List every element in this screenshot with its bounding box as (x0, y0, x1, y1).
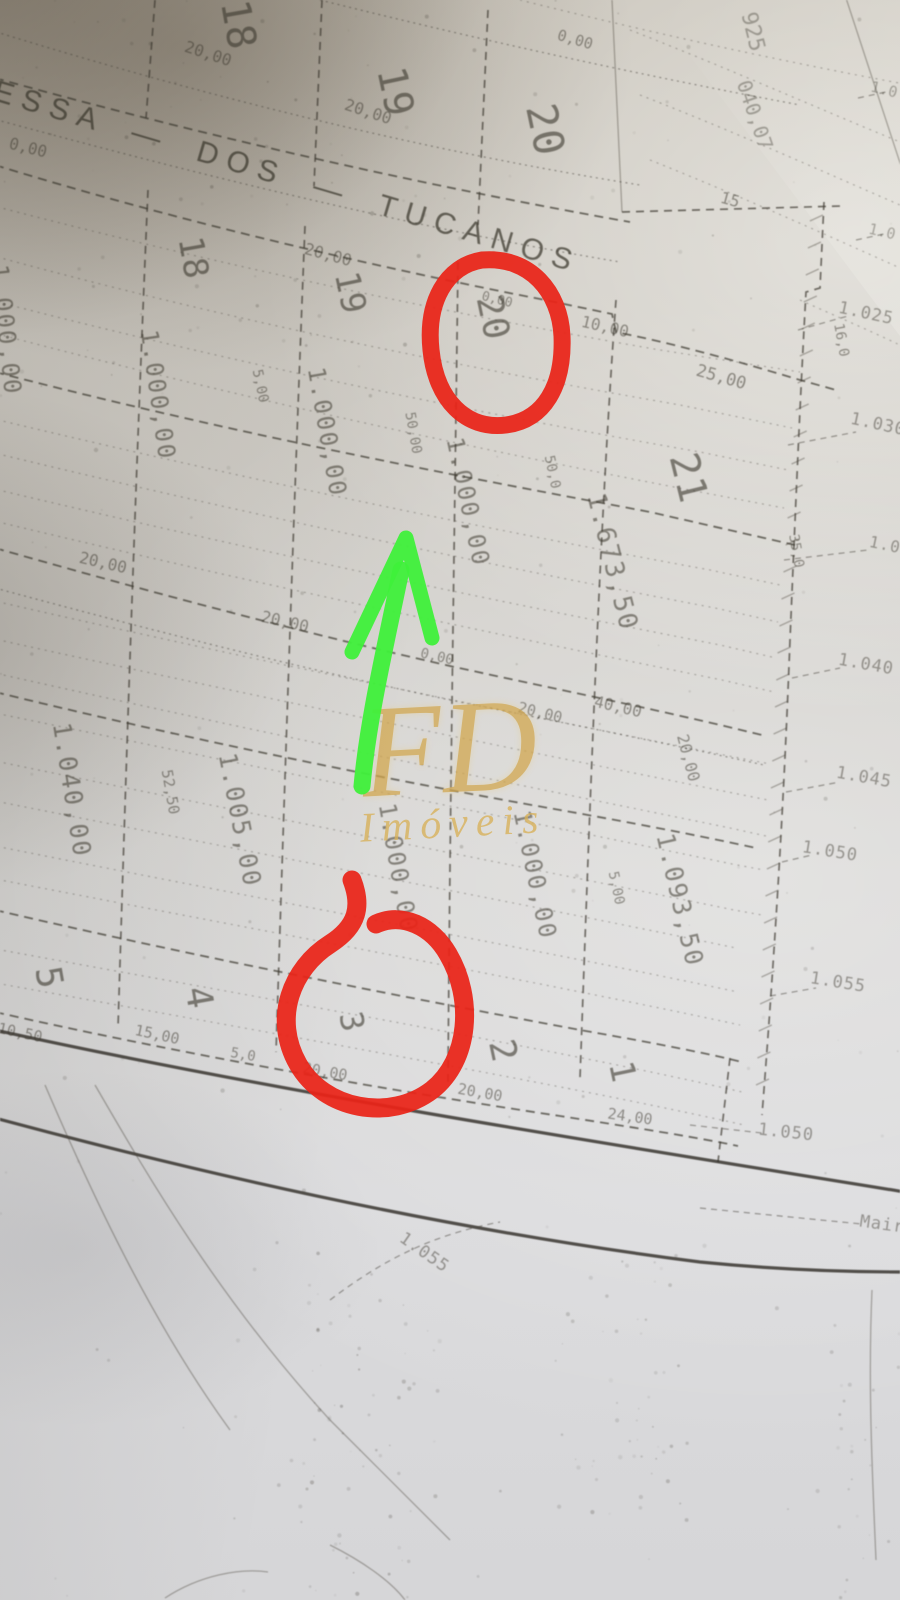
survey-map-photo: ESSA — DOS — TUCANOS 1819201819202154321… (0, 0, 900, 1600)
red-circle-annotation-lot-20 (430, 260, 562, 426)
red-circle-annotation-lot-3 (286, 880, 464, 1108)
marker-annotations (0, 0, 900, 1600)
